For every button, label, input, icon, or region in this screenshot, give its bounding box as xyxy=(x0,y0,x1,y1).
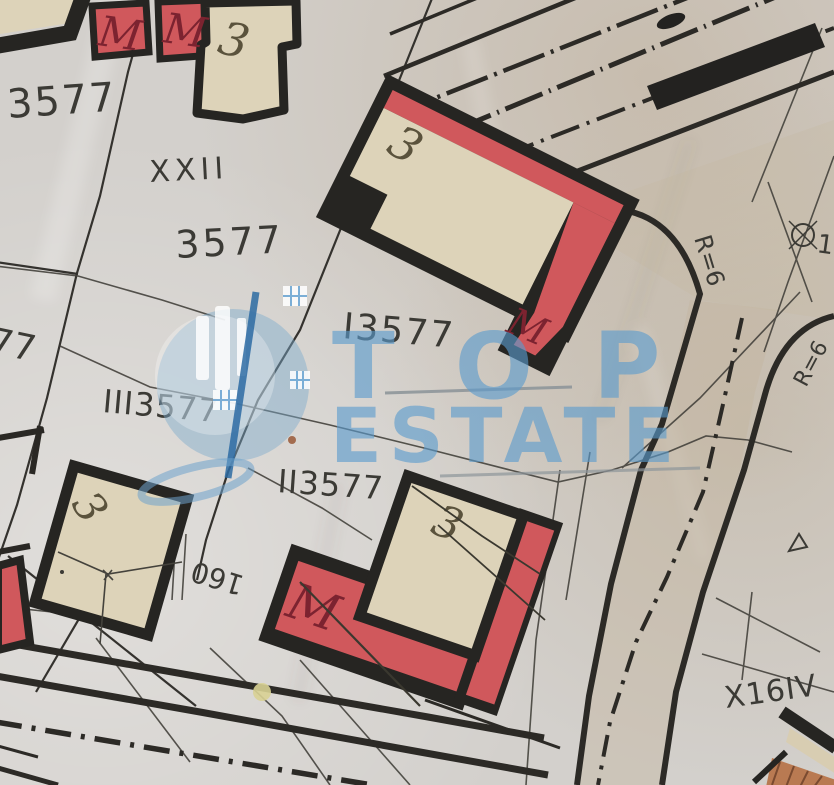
point-number-label: 13 xyxy=(815,229,834,263)
parcel-label-3577-center: 3577 xyxy=(174,217,285,267)
map-photo: 3 M 3 3 M xyxy=(0,0,834,785)
brown-dot-mark xyxy=(288,436,296,444)
m-label-top-2: M xyxy=(160,3,211,58)
watermark: TOP ESTATE xyxy=(138,286,720,510)
m-label-top-1: M xyxy=(95,6,146,61)
building-top-left-fragment xyxy=(0,0,84,46)
block-label-xxii: XXII xyxy=(149,151,230,190)
building-red-fragment-left xyxy=(0,560,30,650)
yellow-dot-mark xyxy=(253,683,271,701)
parcel-label-3577-topleft: 3577 xyxy=(5,74,118,128)
watermark-word-estate: ESTATE xyxy=(330,391,681,480)
cadastral-map: 3 M 3 3 M xyxy=(0,0,834,785)
